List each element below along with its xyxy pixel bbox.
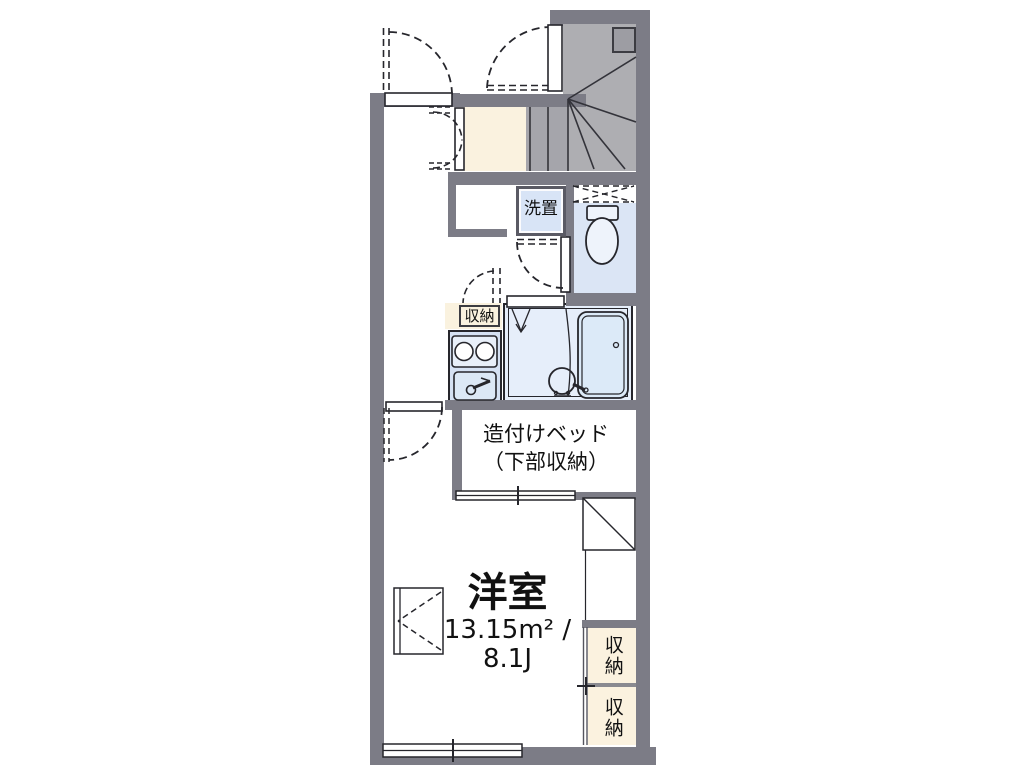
bed-label-line2: （下部収納） bbox=[458, 448, 634, 476]
toilet-window bbox=[572, 185, 636, 203]
wall-bed-bottom-right bbox=[573, 492, 636, 500]
room-area: 13.15m² / bbox=[425, 616, 590, 645]
wall-under-genkan bbox=[448, 172, 650, 185]
wall-right-exterior bbox=[636, 10, 650, 765]
bed-label-line1: 造付けベッド bbox=[458, 420, 634, 448]
wall-washroom-toilet-divider bbox=[566, 184, 574, 300]
entry-door-right-icon bbox=[487, 25, 562, 91]
wall-closet-top-stub bbox=[582, 620, 636, 628]
wall-stair-left bbox=[550, 10, 563, 26]
wall-top-mid bbox=[455, 94, 586, 107]
bed-area-label: 造付けベッド （下部収納） bbox=[458, 420, 634, 476]
wall-stair-top bbox=[550, 10, 650, 24]
main-room-door-icon bbox=[384, 402, 442, 462]
wall-alcove-horizontal bbox=[448, 229, 507, 237]
wall-left-exterior bbox=[370, 93, 384, 765]
main-room-label: 洋室 13.15m² / 8.1J bbox=[425, 570, 590, 674]
wall-toilet-bottom bbox=[566, 293, 650, 306]
nook-diagonal-icon bbox=[583, 498, 635, 620]
closet-upper-label: 収納 bbox=[600, 632, 624, 680]
kitchen-storage-label: 収納 bbox=[459, 307, 500, 326]
floor-plan: 洗置 収納 造付けベッド （下部収納） 洋室 13.15m² / 8.1J 収納… bbox=[0, 0, 1017, 772]
washer-label: 洗置 bbox=[516, 199, 566, 220]
closet-lower-label: 収納 bbox=[600, 694, 624, 742]
bed-window-icon bbox=[456, 486, 575, 505]
washroom-door-icon bbox=[517, 237, 570, 292]
kitchen-unit bbox=[448, 330, 502, 402]
bathroom-inner-line bbox=[508, 308, 628, 397]
genkan-folding-door-icon bbox=[429, 107, 464, 170]
room-name: 洋室 bbox=[425, 570, 590, 616]
room-jo: 8.1J bbox=[425, 645, 590, 674]
wall-top-left bbox=[370, 93, 460, 107]
stair-flight bbox=[526, 107, 568, 171]
entrance-genkan bbox=[464, 107, 526, 171]
wall-kitchen-bath-bottom bbox=[445, 400, 650, 410]
bathroom-unit bbox=[503, 303, 633, 402]
wall-bottom-exterior bbox=[370, 747, 656, 765]
kitchen-closet-door-icon bbox=[463, 268, 500, 303]
stair-corner-box bbox=[612, 27, 636, 53]
toilet-room-floor bbox=[572, 203, 636, 293]
